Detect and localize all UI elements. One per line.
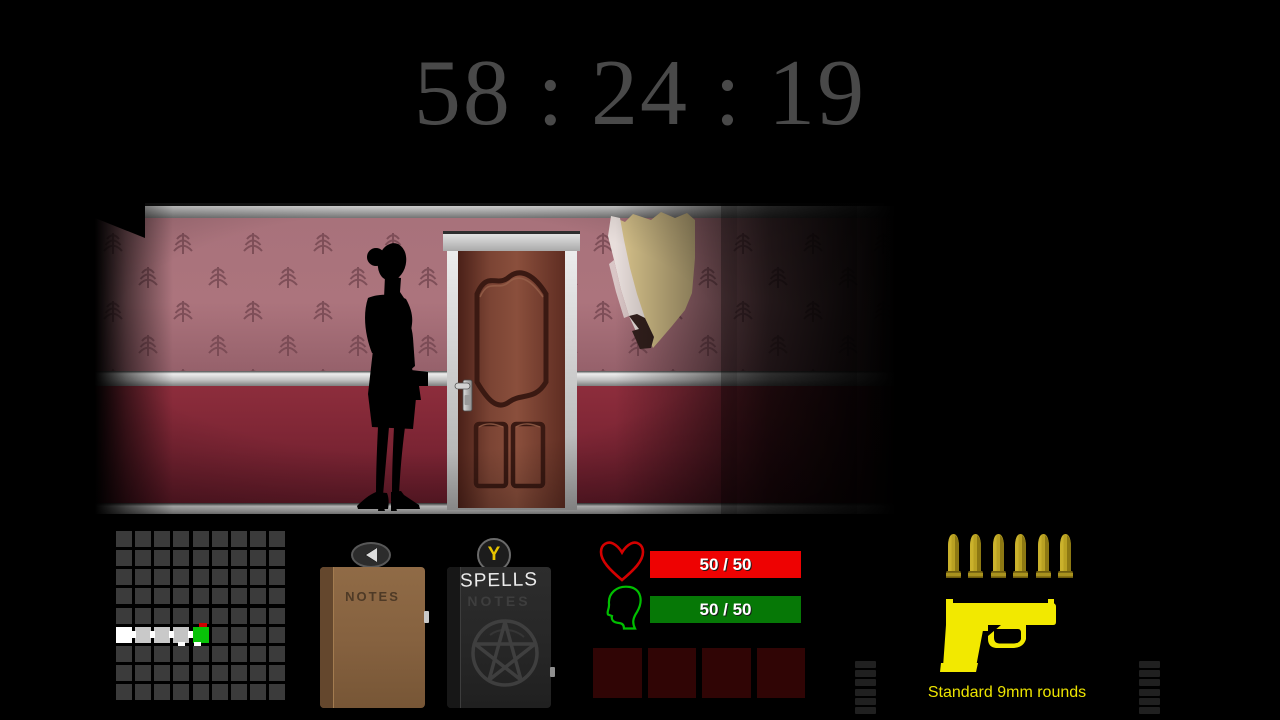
scroll-mark	[855, 661, 876, 668]
minimap-cell	[250, 550, 266, 566]
minimap-cell	[231, 684, 247, 700]
minimap-cell	[250, 531, 266, 547]
minimap-door	[150, 631, 155, 638]
minimap-cell	[231, 627, 247, 643]
minimap-cell	[154, 646, 170, 662]
minimap-door	[194, 642, 201, 647]
minimap-cell	[173, 684, 189, 700]
minimap-cell	[193, 684, 209, 700]
heart-icon	[598, 539, 646, 584]
spells-book-button[interactable]: SPELLS NOTES	[447, 567, 551, 708]
minimap-cell	[269, 646, 285, 662]
minimap-cell	[154, 684, 170, 700]
minimap-cell	[269, 684, 285, 700]
minimap-cell	[135, 569, 151, 585]
scroll-mark	[855, 670, 876, 677]
minimap-door	[169, 631, 174, 638]
minimap-room	[154, 627, 170, 643]
minimap-cell	[212, 665, 228, 681]
scroll-marks-right	[1139, 661, 1160, 716]
scroll-mark	[1139, 670, 1160, 677]
minimap-cell	[154, 550, 170, 566]
scroll-mark	[1139, 698, 1160, 705]
minimap-cell	[250, 588, 266, 604]
minimap-cell	[154, 608, 170, 624]
minimap-cell	[116, 646, 132, 662]
minimap-cell	[135, 608, 151, 624]
minimap-cell	[173, 608, 189, 624]
pentagram-icon	[460, 597, 551, 705]
minimap-cell	[212, 627, 228, 643]
health-bar: 50 / 50	[650, 551, 801, 578]
minimap-cell	[250, 569, 266, 585]
room-scene	[95, 198, 895, 518]
scroll-mark	[1139, 707, 1160, 714]
minimap-cell	[116, 588, 132, 604]
bullet-icon	[967, 532, 984, 579]
minimap	[116, 531, 289, 704]
sanity-bar: 50 / 50	[650, 596, 801, 623]
minimap-cell	[173, 550, 189, 566]
minimap-cell	[135, 665, 151, 681]
minimap-cell	[116, 531, 132, 547]
item-slot[interactable]	[702, 648, 751, 698]
minimap-cell	[173, 588, 189, 604]
minimap-cell	[154, 569, 170, 585]
scroll-mark	[855, 707, 876, 714]
minimap-cell	[135, 646, 151, 662]
minimap-room	[193, 627, 209, 643]
minimap-cell	[231, 569, 247, 585]
bullet-icon	[945, 532, 962, 579]
minimap-cell	[269, 550, 285, 566]
bullet-icon	[1035, 532, 1052, 579]
minimap-room	[135, 627, 151, 643]
minimap-cell	[231, 531, 247, 547]
key-y-label: Y	[488, 544, 501, 566]
scroll-mark	[855, 689, 876, 696]
item-slots	[593, 648, 805, 698]
scroll-mark	[1139, 661, 1160, 668]
minimap-cell	[173, 569, 189, 585]
scroll-mark	[855, 698, 876, 705]
minimap-cell	[193, 608, 209, 624]
minimap-cell	[212, 684, 228, 700]
notes-book-button[interactable]: NOTES	[320, 567, 425, 708]
minimap-room	[173, 627, 189, 643]
book-tab	[424, 611, 429, 623]
bullet-row	[945, 532, 1074, 579]
minimap-cell	[212, 588, 228, 604]
minimap-cell	[231, 646, 247, 662]
minimap-cell	[250, 684, 266, 700]
bullet-icon	[990, 532, 1007, 579]
pistol-icon	[938, 595, 1063, 675]
prev-page-button[interactable]	[351, 542, 391, 568]
minimap-cell	[231, 665, 247, 681]
minimap-cell	[269, 588, 285, 604]
bullet-icon	[1057, 532, 1074, 579]
minimap-cell	[135, 588, 151, 604]
countdown-timer: 58 : 24 : 19	[0, 46, 1280, 140]
minimap-door	[178, 642, 185, 647]
minimap-cell	[193, 531, 209, 547]
minimap-cell	[173, 646, 189, 662]
minimap-cell	[250, 646, 266, 662]
spells-book-label: SPELLS	[447, 569, 551, 593]
minimap-cell	[269, 569, 285, 585]
minimap-cell	[193, 588, 209, 604]
minimap-cell	[212, 531, 228, 547]
minimap-cell	[250, 608, 266, 624]
item-slot[interactable]	[757, 648, 806, 698]
bullet-icon	[1012, 532, 1029, 579]
minimap-cell	[116, 550, 132, 566]
scene-viewport	[95, 198, 895, 518]
minimap-cell	[154, 588, 170, 604]
minimap-cell	[212, 550, 228, 566]
sanity-value: 50 / 50	[700, 600, 752, 620]
minimap-cell	[212, 608, 228, 624]
minimap-cell	[231, 550, 247, 566]
minimap-cell	[135, 684, 151, 700]
scroll-mark	[1139, 679, 1160, 686]
minimap-cell	[193, 550, 209, 566]
minimap-cell	[269, 608, 285, 624]
minimap-cell	[193, 665, 209, 681]
minimap-cell	[116, 665, 132, 681]
minimap-cell	[135, 531, 151, 547]
minimap-cell	[231, 588, 247, 604]
minimap-cell	[212, 569, 228, 585]
scroll-marks-left	[855, 661, 876, 716]
minimap-door	[131, 631, 136, 638]
minimap-cell	[116, 684, 132, 700]
minimap-cell	[193, 646, 209, 662]
minimap-cell	[154, 531, 170, 547]
scroll-mark	[1139, 689, 1160, 696]
left-arrow-icon	[366, 548, 377, 562]
minimap-cell	[116, 608, 132, 624]
notes-book-label: NOTES	[320, 589, 425, 604]
minimap-cell	[193, 569, 209, 585]
scroll-mark	[855, 679, 876, 686]
minimap-cell	[173, 665, 189, 681]
ammo-caption: Standard 9mm rounds	[877, 684, 1137, 702]
minimap-cell	[116, 569, 132, 585]
minimap-room	[116, 627, 132, 643]
minimap-cell	[173, 531, 189, 547]
minimap-cell	[269, 531, 285, 547]
minimap-cell	[250, 627, 266, 643]
minimap-cell	[154, 665, 170, 681]
game-screen: 58 : 24 : 19	[0, 0, 1280, 720]
minimap-cell	[250, 665, 266, 681]
minimap-cell	[269, 627, 285, 643]
item-slot[interactable]	[648, 648, 697, 698]
item-slot[interactable]	[593, 648, 642, 698]
minimap-cell	[212, 646, 228, 662]
minimap-cell	[135, 550, 151, 566]
minimap-objective-marker	[199, 623, 207, 628]
minimap-cell	[231, 608, 247, 624]
head-profile-icon	[604, 584, 642, 630]
minimap-cell	[269, 665, 285, 681]
health-value: 50 / 50	[700, 555, 752, 575]
minimap-door	[188, 631, 193, 638]
